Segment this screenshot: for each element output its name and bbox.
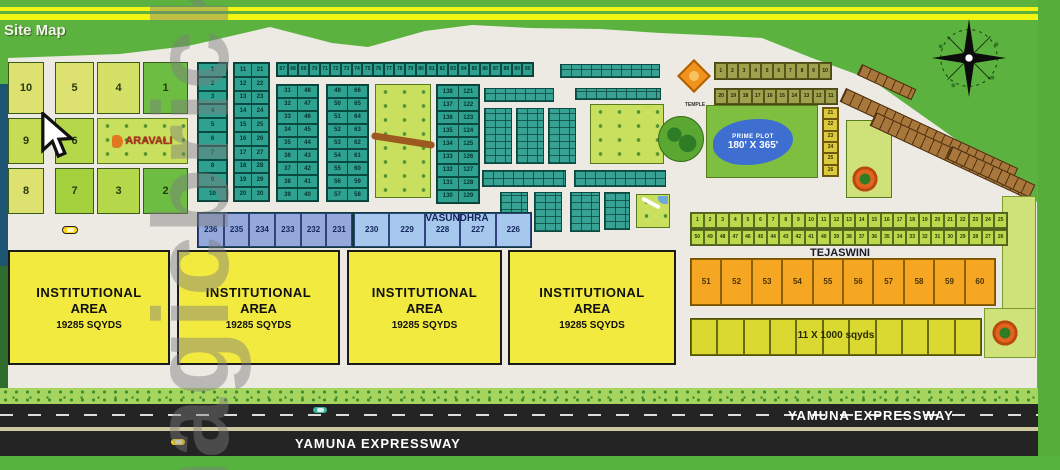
plot-cell: 49: [704, 230, 717, 245]
vasundhra-label: VASUNDHRA: [392, 213, 522, 224]
tejaswini-label: TEJASWINI: [760, 247, 920, 259]
plot-cell: 22: [956, 213, 969, 228]
inst-line1: INSTITUTIONAL: [372, 285, 477, 300]
expressway-upper-carriageway: YAMUNA EXPRESSWAY: [0, 404, 1038, 427]
plot-cell: 37: [855, 230, 868, 245]
plot-cell: 133126: [437, 151, 479, 164]
page-title: Site Map: [4, 22, 66, 39]
plot-number: 57: [328, 189, 347, 200]
plot-cell: 5: [761, 63, 773, 79]
plot-number: 13: [235, 92, 251, 104]
inst-line1: INSTITUTIONAL: [539, 285, 644, 300]
plot-cell: 231: [326, 213, 352, 247]
plot-number: 15: [235, 119, 251, 131]
plot-cell: 6: [198, 132, 227, 146]
plot-cell: 90: [522, 63, 533, 76]
plot-cell: 22: [823, 119, 838, 130]
aravali-park: ARAVALI: [97, 118, 188, 164]
plot-cell: 18: [906, 213, 919, 228]
plot-number: 121: [458, 86, 479, 97]
plot-cell: 24: [823, 142, 838, 153]
plot-cell: 134125: [437, 137, 479, 150]
flower-garden-icon: [852, 166, 878, 192]
central-park: [590, 104, 664, 164]
small-plot-block: [534, 192, 562, 232]
plot-cell: 236: [198, 213, 224, 247]
plot-cell: 47: [729, 230, 742, 245]
plot-number: 66: [347, 86, 367, 97]
plot-cell: 28: [969, 230, 982, 245]
plot-number: 36: [278, 150, 297, 161]
plot-cell: 55: [813, 259, 843, 305]
small-plot-block: [548, 108, 576, 164]
plot-cell: 40: [817, 230, 830, 245]
plot-number: 12: [235, 78, 251, 90]
plot-cell: 9: [792, 213, 805, 228]
plot-number: 134: [438, 138, 458, 149]
plot-cell: 235: [224, 213, 250, 247]
plot-strip-temple-1-10: 12345678910: [714, 62, 832, 80]
plot-column-21-26: 212223242526: [822, 107, 839, 177]
plot-number: 59: [347, 176, 367, 187]
plot-cell: 15: [776, 89, 788, 104]
tejaswini-row-50-26: 5049484746454443424140393837363534333231…: [690, 229, 1008, 246]
small-plot-block: [484, 108, 512, 164]
small-plot-strip: [560, 64, 660, 78]
inst-line3: 19285 SQYDS: [559, 320, 625, 331]
plot-cell: 86: [480, 63, 491, 76]
plot-cell: 3247: [277, 98, 318, 111]
tejaswini-row-1-25: 1234567891011121314151617181920212223242…: [690, 212, 1008, 229]
small-plot-strip: [575, 88, 661, 100]
institutional-area-3: INSTITUTIONAL AREA 19285 SQYDS: [347, 250, 502, 365]
plot-cell: 1525: [234, 118, 269, 132]
plot-cell: 3742: [277, 162, 318, 175]
left-green-strip: [0, 266, 8, 388]
plot-number: 33: [278, 112, 297, 123]
inst-line1: INSTITUTIONAL: [36, 285, 141, 300]
plot-number: 24: [251, 105, 268, 117]
car-icon: [170, 438, 186, 446]
plot-cell: 30: [944, 230, 957, 245]
plot-number: 18: [235, 161, 251, 173]
plot-number: 49: [328, 86, 347, 97]
inst-line2: AREA: [71, 301, 108, 316]
plot-number: 137: [438, 99, 458, 110]
plot-cell: 59: [934, 259, 964, 305]
plot-number: 138: [438, 86, 458, 97]
plot-cell: 60: [965, 259, 995, 305]
plot-cell: 56: [843, 259, 873, 305]
plot-cell: 1929: [234, 173, 269, 187]
plot-column-1-10: 12345678910: [197, 62, 228, 202]
plot-cell: 1: [691, 213, 704, 228]
aravali-logo-icon: [112, 135, 123, 148]
plot-cell: 70: [309, 63, 320, 76]
plot-cell: 3940: [277, 188, 318, 201]
plot-cell: 5: [742, 213, 755, 228]
plot-cell: 50: [691, 230, 704, 245]
plot-number: 11: [235, 64, 251, 76]
plot-5: 5: [55, 62, 94, 114]
plot-number: 128: [458, 178, 479, 189]
plot-block-31-48: 314832473346344535443643374238413940: [276, 84, 319, 202]
plot-number: 51: [328, 112, 347, 123]
plot-number: 64: [347, 112, 367, 123]
car-icon: [312, 406, 328, 414]
plot-number: 22: [251, 78, 268, 90]
plot-number: 35: [278, 138, 297, 149]
plot-cell: 41: [805, 230, 818, 245]
plot-cell: 45: [754, 230, 767, 245]
plot-cell: 9: [808, 63, 820, 79]
plot-cell: 5461: [327, 149, 368, 162]
plot-cell: 13: [843, 213, 856, 228]
plot-cell: 25: [994, 213, 1007, 228]
plot-cell: 75: [362, 63, 373, 76]
plot-block-49-66: 496650655164526353625461556056595758: [326, 84, 369, 202]
plot-number: 124: [458, 125, 479, 136]
institutional-area-1: INSTITUTIONAL AREA 19285 SQYDS: [8, 250, 170, 365]
plot-cell: 3: [716, 213, 729, 228]
plot-10: 10: [8, 62, 44, 114]
plot-number: 28: [251, 161, 268, 173]
plot-cell: 83: [448, 63, 459, 76]
plot-cell: 4: [750, 63, 762, 79]
plot-cell: 82: [437, 63, 448, 76]
plot-cell: 132127: [437, 164, 479, 177]
plot-cell: 23: [823, 131, 838, 142]
plot-number: 20: [235, 188, 251, 200]
plot-number: 38: [278, 176, 297, 187]
small-plot-strip: [482, 170, 566, 187]
plot-cell: 3544: [277, 137, 318, 150]
stream-park: [375, 84, 431, 198]
plot-label: 4: [115, 82, 121, 94]
plot-cell: 234: [249, 213, 275, 247]
plot-number: 37: [278, 163, 297, 174]
banner-stripe-thin: [0, 7, 1060, 11]
plot-cell: 8: [198, 160, 227, 174]
plot-cell: 43: [779, 230, 792, 245]
plot-number: 29: [251, 174, 268, 186]
plot-number: 60: [347, 163, 367, 174]
plot-number: 56: [328, 176, 347, 187]
plot-cell: 29: [956, 230, 969, 245]
playground-park: [636, 194, 670, 228]
plot-cell: 19: [919, 213, 932, 228]
plot-cell: 46: [742, 230, 755, 245]
plot-number: 52: [328, 125, 347, 136]
inst-line2: AREA: [574, 301, 611, 316]
plot-number: 133: [438, 152, 458, 163]
plot-cell: 12: [830, 213, 843, 228]
plot-number: 30: [251, 188, 268, 200]
plot-cell: 79: [405, 63, 416, 76]
prime-plot-size: 180' X 365': [728, 140, 778, 151]
plot-cell: 130129: [437, 190, 479, 203]
plot-cell: 71: [320, 63, 331, 76]
plot-strip-top: 6768697071727374757677787980818283848586…: [276, 62, 534, 77]
prime-plot-lake: PRIME PLOT 180' X 365': [713, 119, 793, 165]
inst-line3: 19285 SQYDS: [56, 320, 122, 331]
plot-cell: 1222: [234, 77, 269, 91]
plot-number: 34: [278, 125, 297, 136]
plot-cell: 58: [904, 259, 934, 305]
left-water-strip: [0, 84, 8, 266]
plot-cell: 6: [773, 63, 785, 79]
plot-cell: 39: [830, 230, 843, 245]
plot-cell: 85: [469, 63, 480, 76]
plot-cell: 68: [288, 63, 299, 76]
plot-number: 65: [347, 99, 367, 110]
plot-cell: 34: [893, 230, 906, 245]
plot-number: 46: [297, 112, 317, 123]
plot-cell: 10: [198, 187, 227, 201]
plot-strip-temple-20-11: 20191817161514131211: [714, 88, 838, 105]
plot-cell: 25: [823, 153, 838, 164]
plot-cell: 52: [721, 259, 751, 305]
plot-cell: 54: [782, 259, 812, 305]
institutional-area-2: INSTITUTIONAL AREA 19285 SQYDS: [177, 250, 340, 365]
plot-cell: 10: [819, 63, 831, 79]
plot-number: 129: [458, 191, 479, 202]
plot-cell: 131128: [437, 177, 479, 190]
plot-label: 8: [23, 185, 29, 197]
plot-number: 47: [297, 99, 317, 110]
plot-number: 43: [297, 150, 317, 161]
plot-number: 136: [438, 112, 458, 123]
plot-cell: 76: [373, 63, 384, 76]
plot-cell: 73: [341, 63, 352, 76]
plot-cell: 5560: [327, 162, 368, 175]
inst-line1: INSTITUTIONAL: [206, 285, 311, 300]
plot-cell: 23: [969, 213, 982, 228]
plot-label: 10: [20, 82, 32, 94]
inst-line3: 19285 SQYDS: [226, 320, 292, 331]
plot-label: 1: [162, 82, 168, 94]
plot-cell: 3445: [277, 124, 318, 137]
plot-cell: 3643: [277, 149, 318, 162]
plot-3: 3: [97, 168, 140, 214]
plot-cell: 16: [764, 89, 776, 104]
plot-cell: 16: [881, 213, 894, 228]
small-plot-block: [604, 192, 630, 230]
plot-cell: 53: [752, 259, 782, 305]
inst-line2: AREA: [406, 301, 443, 316]
plot-2: 2: [143, 168, 188, 214]
plot-cell: 84: [458, 63, 469, 76]
plot-cell: 35: [881, 230, 894, 245]
plot-cell: 4: [198, 104, 227, 118]
plot-number: 53: [328, 138, 347, 149]
plot-label: 5: [71, 82, 77, 94]
bottom-green-band: [0, 456, 1060, 470]
plot-cell: 48: [716, 230, 729, 245]
plot-cell: 1424: [234, 104, 269, 118]
plot-7: 7: [55, 168, 94, 214]
site-map: Site Map 10 5 4 1 9 6 8 7 3 2 ARAVALI 12…: [0, 0, 1060, 470]
plot-number: 42: [297, 163, 317, 174]
plot-number: 26: [251, 133, 268, 145]
plot-number: 14: [235, 105, 251, 117]
plot-cell: 89: [512, 63, 523, 76]
plot-cell: 87: [490, 63, 501, 76]
plot-cell: 136123: [437, 111, 479, 124]
plot-number: 48: [297, 86, 317, 97]
plot-number: 17: [235, 147, 251, 159]
plot-cell: 18: [739, 89, 751, 104]
plot-cell: 38: [843, 230, 856, 245]
plot-cell: 24: [982, 213, 995, 228]
roundabout: [658, 116, 704, 162]
plot-cell: 135124: [437, 124, 479, 137]
plot-cell: 26: [823, 165, 838, 176]
plot-number: 23: [251, 92, 268, 104]
small-plot-block: [570, 192, 600, 232]
plot-cell: 67: [277, 63, 288, 76]
vasundhra-plots-236-231: 236235234233232231: [197, 212, 353, 248]
plot-cell: 17: [752, 89, 764, 104]
small-plot-strip: [484, 88, 554, 102]
strip-11x1000-label: 11 X 1000 sqyds: [690, 330, 982, 341]
plot-cell: 1121: [234, 63, 269, 77]
plot-number: 27: [251, 147, 268, 159]
plot-8: 8: [8, 168, 44, 214]
mouse-cursor-icon: [38, 112, 80, 162]
plot-number: 63: [347, 125, 367, 136]
expressway-lower-carriageway: YAMUNA EXPRESSWAY: [0, 431, 1038, 456]
plot-cell: 233: [275, 213, 301, 247]
plot-cell: 2030: [234, 187, 269, 201]
small-plot-block: [516, 108, 544, 164]
plot-number: 39: [278, 189, 297, 200]
plot-cell: 72: [330, 63, 341, 76]
stream: [371, 132, 435, 149]
plot-cell: 5362: [327, 137, 368, 150]
plot-cell: 12: [813, 89, 825, 104]
plot-number: 58: [347, 189, 367, 200]
plot-number: 131: [438, 178, 458, 189]
plot-cell: 31: [931, 230, 944, 245]
plot-number: 125: [458, 138, 479, 149]
plot-cell: 15: [868, 213, 881, 228]
plot-cell: 19: [727, 89, 739, 104]
plot-cell: 51: [691, 259, 721, 305]
plot-number: 31: [278, 86, 297, 97]
plot-1: 1: [143, 62, 188, 114]
plot-label: 3: [115, 185, 121, 197]
plot-cell: 1323: [234, 91, 269, 105]
plot-cell: 10: [805, 213, 818, 228]
plot-cell: 1: [715, 63, 727, 79]
plot-cell: 21: [823, 108, 838, 119]
tejaswini-plots-51-60: 51525354555657585960: [690, 258, 996, 306]
plot-cell: 230: [354, 213, 389, 247]
plot-cell: 5164: [327, 111, 368, 124]
plot-number: 123: [458, 112, 479, 123]
plot-cell: 4966: [327, 85, 368, 98]
plot-cell: 138121: [437, 85, 479, 98]
institutional-area-4: INSTITUTIONAL AREA 19285 SQYDS: [508, 250, 676, 365]
plot-cell: 3: [738, 63, 750, 79]
plot-cell: 1626: [234, 132, 269, 146]
plot-cell: 3148: [277, 85, 318, 98]
expressway-label-lower: YAMUNA EXPRESSWAY: [295, 436, 461, 451]
plot-cell: 81: [426, 63, 437, 76]
inst-line3: 19285 SQYDS: [392, 320, 458, 331]
plot-cell: 14: [855, 213, 868, 228]
plot-number: 61: [347, 150, 367, 161]
plot-block-121-138: 1381211371221361231351241341251331261321…: [436, 84, 480, 204]
plot-cell: 4: [729, 213, 742, 228]
plot-number: 21: [251, 64, 268, 76]
plot-cell: 3: [198, 91, 227, 105]
plot-cell: 2: [704, 213, 717, 228]
plot-number: 127: [458, 165, 479, 176]
plot-cell: 5065: [327, 98, 368, 111]
inst-line2: AREA: [240, 301, 277, 316]
plot-number: 44: [297, 138, 317, 149]
plot-cell: 1828: [234, 160, 269, 174]
plot-cell: 27: [982, 230, 995, 245]
plot-number: 19: [235, 174, 251, 186]
plot-4: 4: [97, 62, 140, 114]
plot-number: 62: [347, 138, 367, 149]
plot-cell: 77: [384, 63, 395, 76]
plot-cell: 11: [817, 213, 830, 228]
plot-cell: 7: [785, 63, 797, 79]
plot-number: 132: [438, 165, 458, 176]
plot-cell: 20: [931, 213, 944, 228]
plot-cell: 88: [501, 63, 512, 76]
plot-cell: 8: [779, 213, 792, 228]
plot-cell: 36: [868, 230, 881, 245]
plot-cell: 1: [198, 63, 227, 77]
green-belt: [0, 388, 1038, 404]
plot-label: 2: [162, 185, 168, 197]
aravali-label: ARAVALI: [125, 135, 172, 147]
plot-cell: 57: [873, 259, 903, 305]
plot-number: 122: [458, 99, 479, 110]
plot-cell: 7: [767, 213, 780, 228]
small-plot-strip: [574, 170, 666, 187]
plot-cell: 5263: [327, 124, 368, 137]
plot-cell: 20: [715, 89, 727, 104]
expressway-label-upper: YAMUNA EXPRESSWAY: [788, 408, 954, 423]
plot-number: 55: [328, 163, 347, 174]
plot-cell: 5659: [327, 175, 368, 188]
plot-number: 126: [458, 152, 479, 163]
plot-cell: 232: [301, 213, 327, 247]
plot-number: 25: [251, 119, 268, 131]
plot-cell: 42: [792, 230, 805, 245]
plot-number: 135: [438, 125, 458, 136]
pond: [658, 196, 668, 204]
plot-cell: 9: [198, 173, 227, 187]
flower-garden-icon: [992, 320, 1018, 346]
plot-cell: 26: [994, 230, 1007, 245]
plot-cell: 11: [825, 89, 837, 104]
plot-cell: 80: [416, 63, 427, 76]
plot-cell: 5758: [327, 188, 368, 201]
plot-cell: 3841: [277, 175, 318, 188]
plot-cell: 32: [919, 230, 932, 245]
plot-number: 50: [328, 99, 347, 110]
plot-number: 16: [235, 133, 251, 145]
plot-cell: 5: [198, 118, 227, 132]
banner-stripe-thick: [0, 14, 1060, 20]
